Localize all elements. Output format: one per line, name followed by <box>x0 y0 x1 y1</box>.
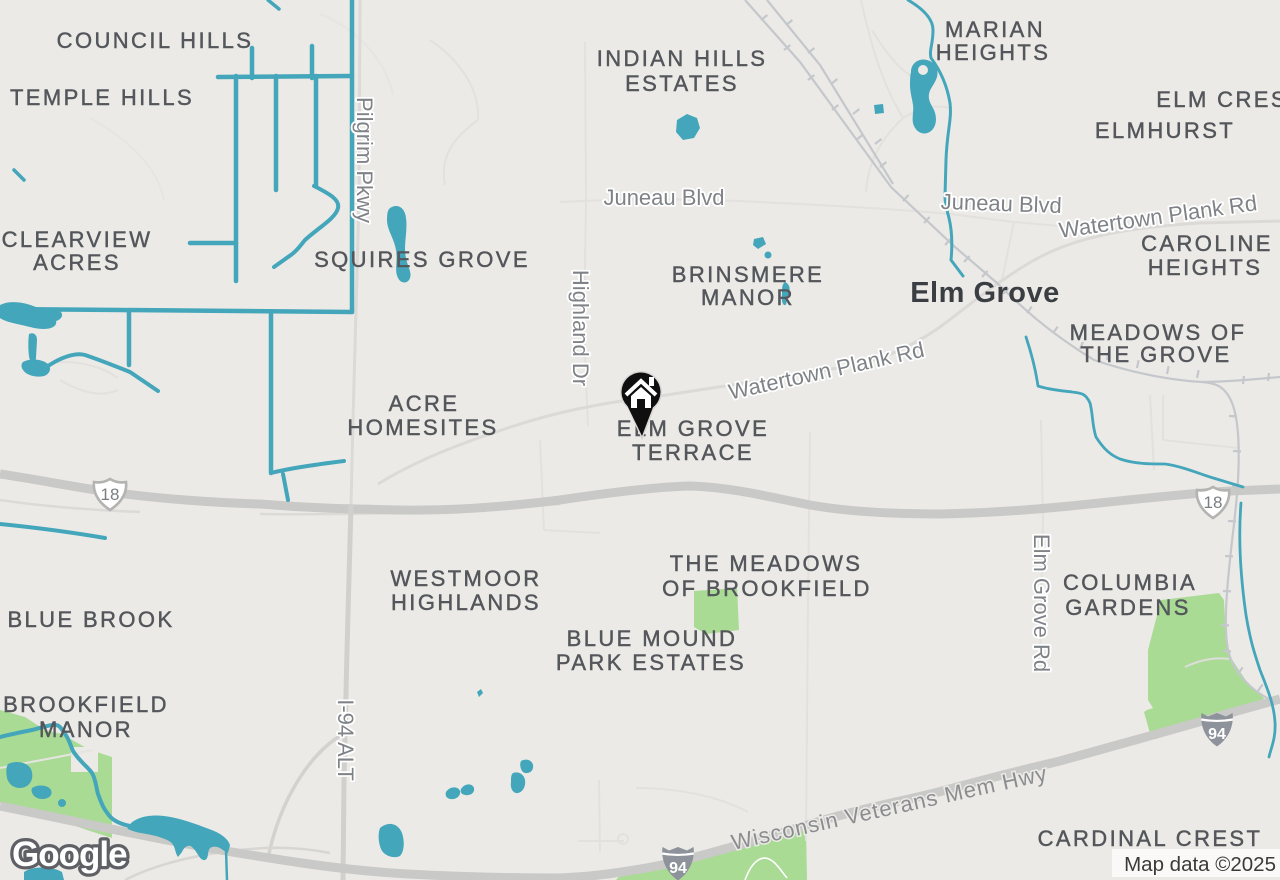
svg-text:COLUMBIA: COLUMBIA <box>1063 570 1197 595</box>
svg-text:HOMESITES: HOMESITES <box>347 415 498 440</box>
svg-text:MANOR: MANOR <box>701 285 795 310</box>
svg-text:ELM CREST: ELM CREST <box>1156 87 1280 112</box>
svg-text:I-94 ALT: I-94 ALT <box>333 699 358 781</box>
svg-text:94: 94 <box>669 860 687 877</box>
svg-text:OF BROOKFIELD: OF BROOKFIELD <box>662 576 872 601</box>
svg-text:GARDENS: GARDENS <box>1065 595 1191 620</box>
svg-text:MARIAN: MARIAN <box>945 17 1045 42</box>
svg-text:Pilgrim Pkwy: Pilgrim Pkwy <box>352 97 377 223</box>
svg-text:ACRE: ACRE <box>389 391 460 416</box>
svg-text:Juneau Blvd: Juneau Blvd <box>603 185 724 210</box>
svg-text:BRINSMERE: BRINSMERE <box>672 262 824 287</box>
svg-text:MANOR: MANOR <box>39 717 133 742</box>
svg-text:THE GROVE: THE GROVE <box>1080 342 1231 367</box>
svg-text:PARK ESTATES: PARK ESTATES <box>556 650 746 675</box>
svg-text:Juneau Blvd: Juneau Blvd <box>940 189 1062 218</box>
svg-text:Elm Grove Rd: Elm Grove Rd <box>1029 534 1054 672</box>
svg-text:TERRACE: TERRACE <box>632 440 754 465</box>
svg-text:ESTATES: ESTATES <box>625 71 739 96</box>
svg-text:HEIGHTS: HEIGHTS <box>1148 255 1263 280</box>
svg-text:18: 18 <box>101 485 120 504</box>
svg-text:CARDINAL CREST: CARDINAL CREST <box>1038 826 1263 851</box>
svg-text:Elm Grove: Elm Grove <box>910 277 1060 309</box>
svg-text:BLUE BROOK: BLUE BROOK <box>7 607 174 632</box>
svg-text:WESTMOOR: WESTMOOR <box>390 566 541 591</box>
svg-text:HEIGHTS: HEIGHTS <box>936 40 1051 65</box>
svg-text:COUNCIL HILLS: COUNCIL HILLS <box>57 28 254 53</box>
svg-text:TEMPLE HILLS: TEMPLE HILLS <box>10 85 194 110</box>
svg-text:Highland Dr: Highland Dr <box>568 270 593 386</box>
svg-text:BLUE MOUND: BLUE MOUND <box>567 626 738 651</box>
svg-text:Google: Google <box>12 835 127 874</box>
svg-text:SQUIRES GROVE: SQUIRES GROVE <box>314 247 530 272</box>
svg-text:18: 18 <box>1204 493 1223 512</box>
svg-text:BROOKFIELD: BROOKFIELD <box>3 692 169 717</box>
svg-text:94: 94 <box>1208 726 1226 743</box>
svg-text:CLEARVIEW: CLEARVIEW <box>2 227 153 252</box>
svg-text:THE MEADOWS: THE MEADOWS <box>670 551 863 576</box>
svg-text:HIGHLANDS: HIGHLANDS <box>391 590 541 615</box>
svg-text:ACRES: ACRES <box>33 250 121 275</box>
svg-text:ELMHURST: ELMHURST <box>1095 118 1235 143</box>
svg-text:Map data ©2025: Map data ©2025 <box>1124 853 1276 876</box>
svg-text:INDIAN HILLS: INDIAN HILLS <box>597 46 768 71</box>
svg-text:CAROLINE: CAROLINE <box>1141 231 1273 256</box>
